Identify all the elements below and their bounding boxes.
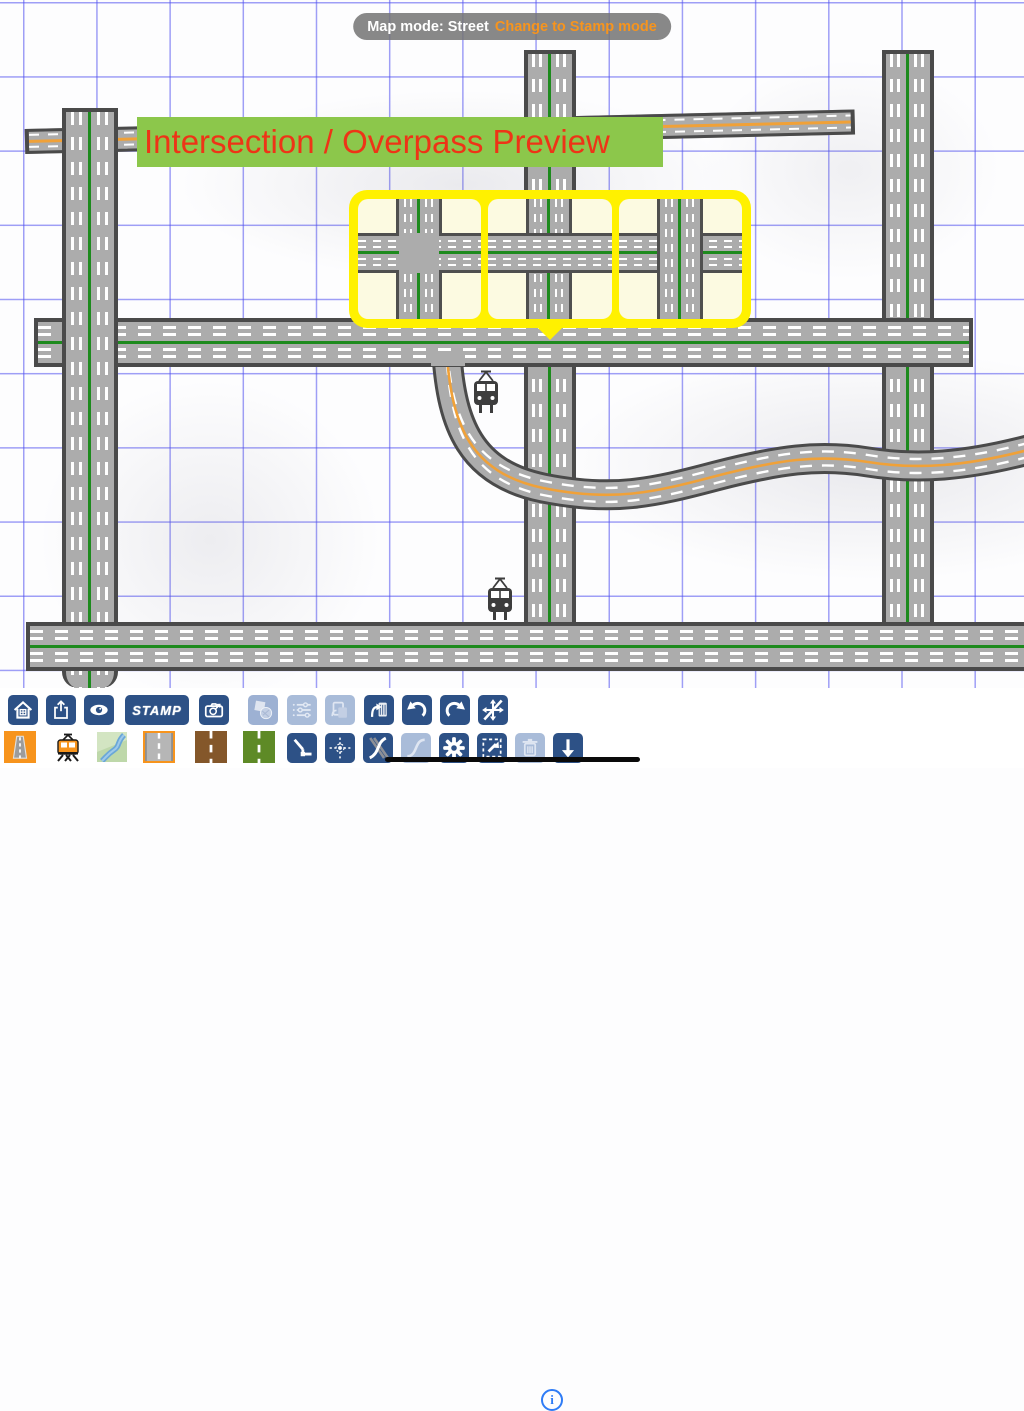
redo-icon xyxy=(442,697,468,723)
home-icon xyxy=(11,698,35,722)
layer-settings-button xyxy=(287,695,317,725)
map-mode-label: Map mode: Street xyxy=(367,19,489,35)
paste-button[interactable] xyxy=(364,695,394,725)
paste-move-icon xyxy=(366,697,392,723)
train-icon xyxy=(53,731,83,763)
info-icon: i xyxy=(550,1392,554,1408)
pan-disabled-icon xyxy=(480,697,506,723)
map-shading xyxy=(560,350,1024,580)
preview-banner-title: Intersection / Overpass Preview xyxy=(137,117,663,167)
preview-road-horizontal xyxy=(488,233,611,273)
undo-button[interactable] xyxy=(402,695,432,725)
shapes-icon xyxy=(250,697,276,723)
crosshair-icon xyxy=(327,735,353,761)
intersection-preview-popup xyxy=(349,190,751,328)
road-bottom-horizontal[interactable] xyxy=(26,622,1024,671)
share-icon xyxy=(49,698,73,722)
center-point-tool-button[interactable] xyxy=(325,733,355,763)
road-style-gray-button[interactable] xyxy=(143,731,175,763)
share-button[interactable] xyxy=(46,695,76,725)
pan-lock-button[interactable] xyxy=(478,695,508,725)
camera-button[interactable] xyxy=(199,695,229,725)
change-mode-button[interactable]: Change to Stamp mode xyxy=(495,19,657,35)
road-style-gray-icon xyxy=(145,733,173,761)
sliders-icon xyxy=(289,697,315,723)
info-button[interactable]: i xyxy=(541,1389,563,1411)
map-mode-pill: Map mode: Street Change to Stamp mode xyxy=(353,13,671,40)
option-overpass-vertical-on-top[interactable] xyxy=(619,199,742,319)
road-left-vertical[interactable] xyxy=(62,108,118,688)
road-perspective-icon xyxy=(6,733,34,761)
road-style-green-icon xyxy=(243,731,275,763)
corner-icon xyxy=(289,735,315,761)
stamp-label: STAMP xyxy=(132,703,182,718)
map-canvas[interactable] xyxy=(0,0,1024,768)
road-style-brown-button[interactable] xyxy=(195,731,227,763)
undo-icon xyxy=(404,697,430,723)
toolbar: STAMP xyxy=(0,688,1024,768)
home-button[interactable] xyxy=(8,695,38,725)
road-style-green-button[interactable] xyxy=(243,731,275,763)
road-tool-button[interactable] xyxy=(4,731,36,763)
tram-marker-lower[interactable] xyxy=(485,576,515,622)
stamp-button[interactable]: STAMP xyxy=(125,695,189,725)
rail-tool-button[interactable] xyxy=(52,731,84,763)
river-tool-button[interactable] xyxy=(96,731,128,763)
road-style-brown-icon xyxy=(195,731,227,763)
camera-icon xyxy=(201,697,227,723)
visibility-button[interactable] xyxy=(84,695,114,725)
tram-marker-upper[interactable] xyxy=(471,369,501,415)
flat-crossing-patch xyxy=(399,233,439,273)
river-icon xyxy=(97,732,127,762)
option-flat-intersection[interactable] xyxy=(358,199,481,319)
preview-road-vertical xyxy=(657,199,703,319)
copy-button xyxy=(325,695,355,725)
option-overpass-horizontal-on-top[interactable] xyxy=(488,199,611,319)
copy-icon xyxy=(327,697,353,723)
shapes-button[interactable] xyxy=(248,695,278,725)
road-junction-patch xyxy=(431,352,465,366)
eye-icon xyxy=(86,697,112,723)
corner-tool-button[interactable] xyxy=(287,733,317,763)
redo-button[interactable] xyxy=(440,695,470,725)
home-indicator[interactable] xyxy=(385,757,640,762)
